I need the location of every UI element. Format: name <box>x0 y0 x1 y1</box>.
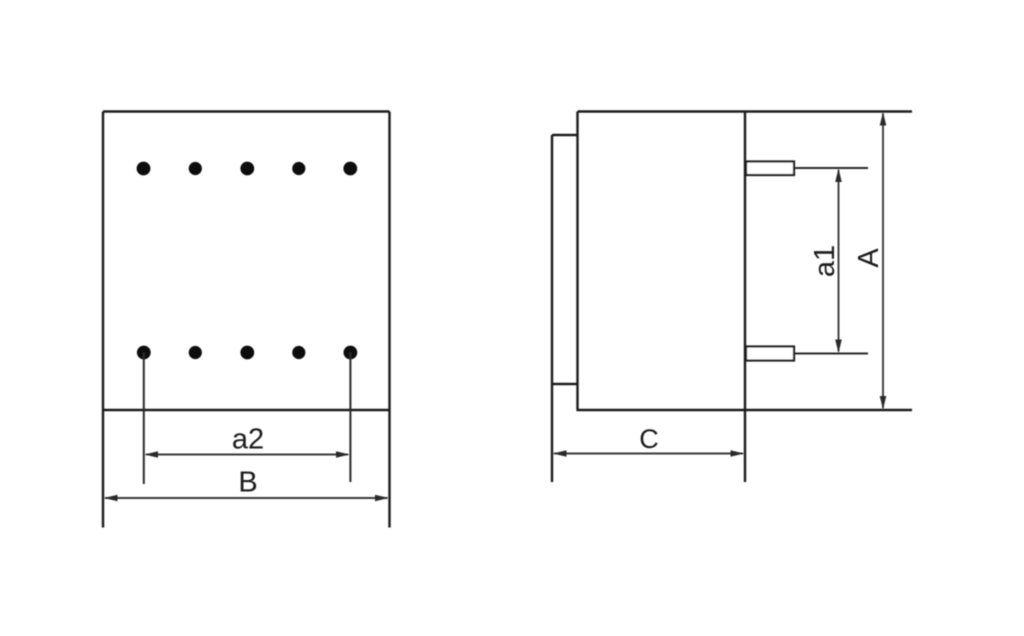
svg-text:a1: a1 <box>809 245 841 277</box>
svg-text:A: A <box>853 248 885 268</box>
svg-text:B: B <box>238 467 257 499</box>
svg-text:a2: a2 <box>232 424 264 456</box>
svg-text:C: C <box>639 424 659 454</box>
